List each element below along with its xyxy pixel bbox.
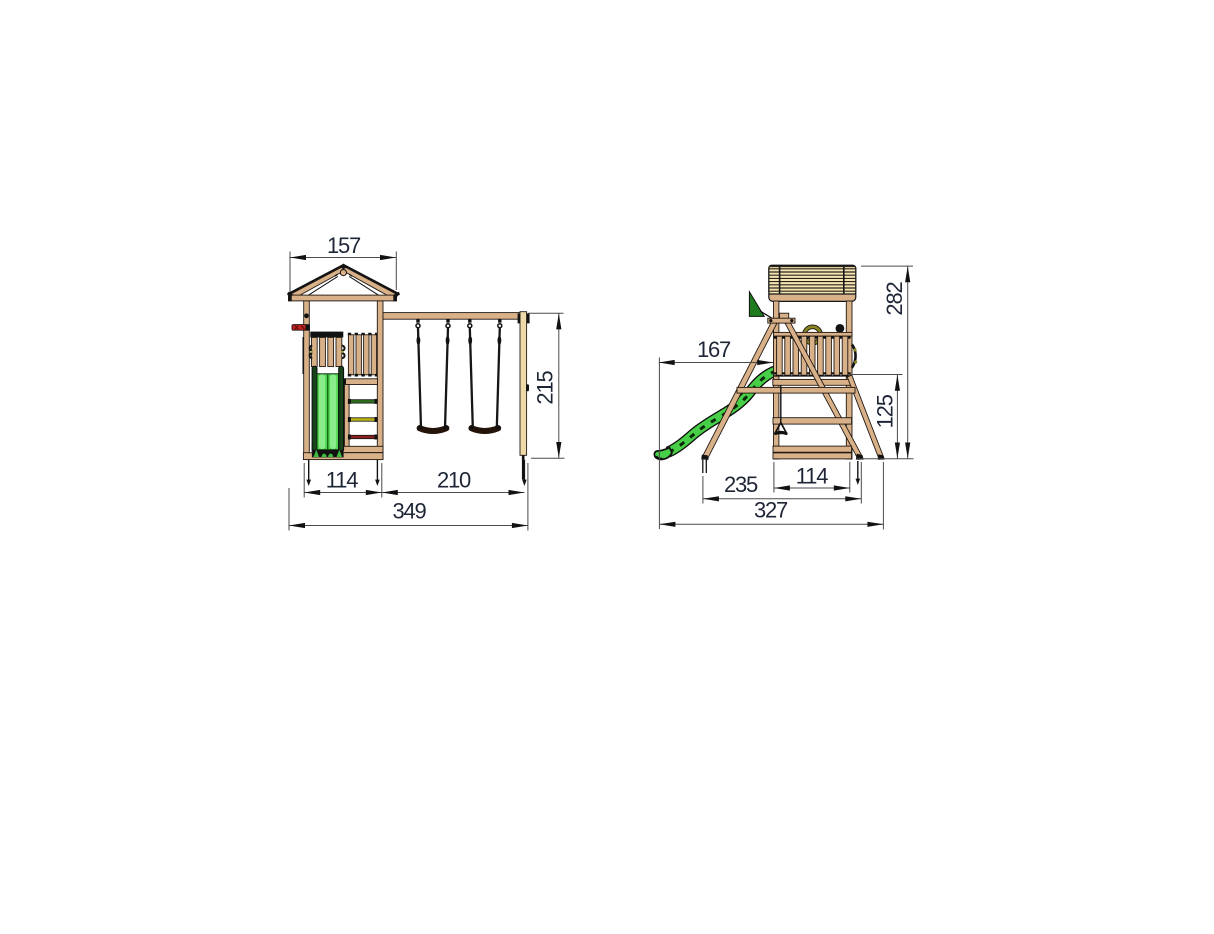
svg-text:167: 167 [697, 337, 731, 362]
svg-text:114: 114 [796, 464, 828, 489]
svg-text:114: 114 [326, 468, 358, 493]
svg-text:157: 157 [327, 233, 361, 258]
svg-text:282: 282 [882, 281, 907, 315]
svg-text:210: 210 [437, 468, 471, 493]
svg-text:235: 235 [724, 472, 758, 497]
svg-text:327: 327 [754, 498, 788, 523]
svg-text:125: 125 [872, 394, 897, 428]
svg-text:215: 215 [533, 370, 558, 404]
svg-text:349: 349 [392, 499, 426, 524]
